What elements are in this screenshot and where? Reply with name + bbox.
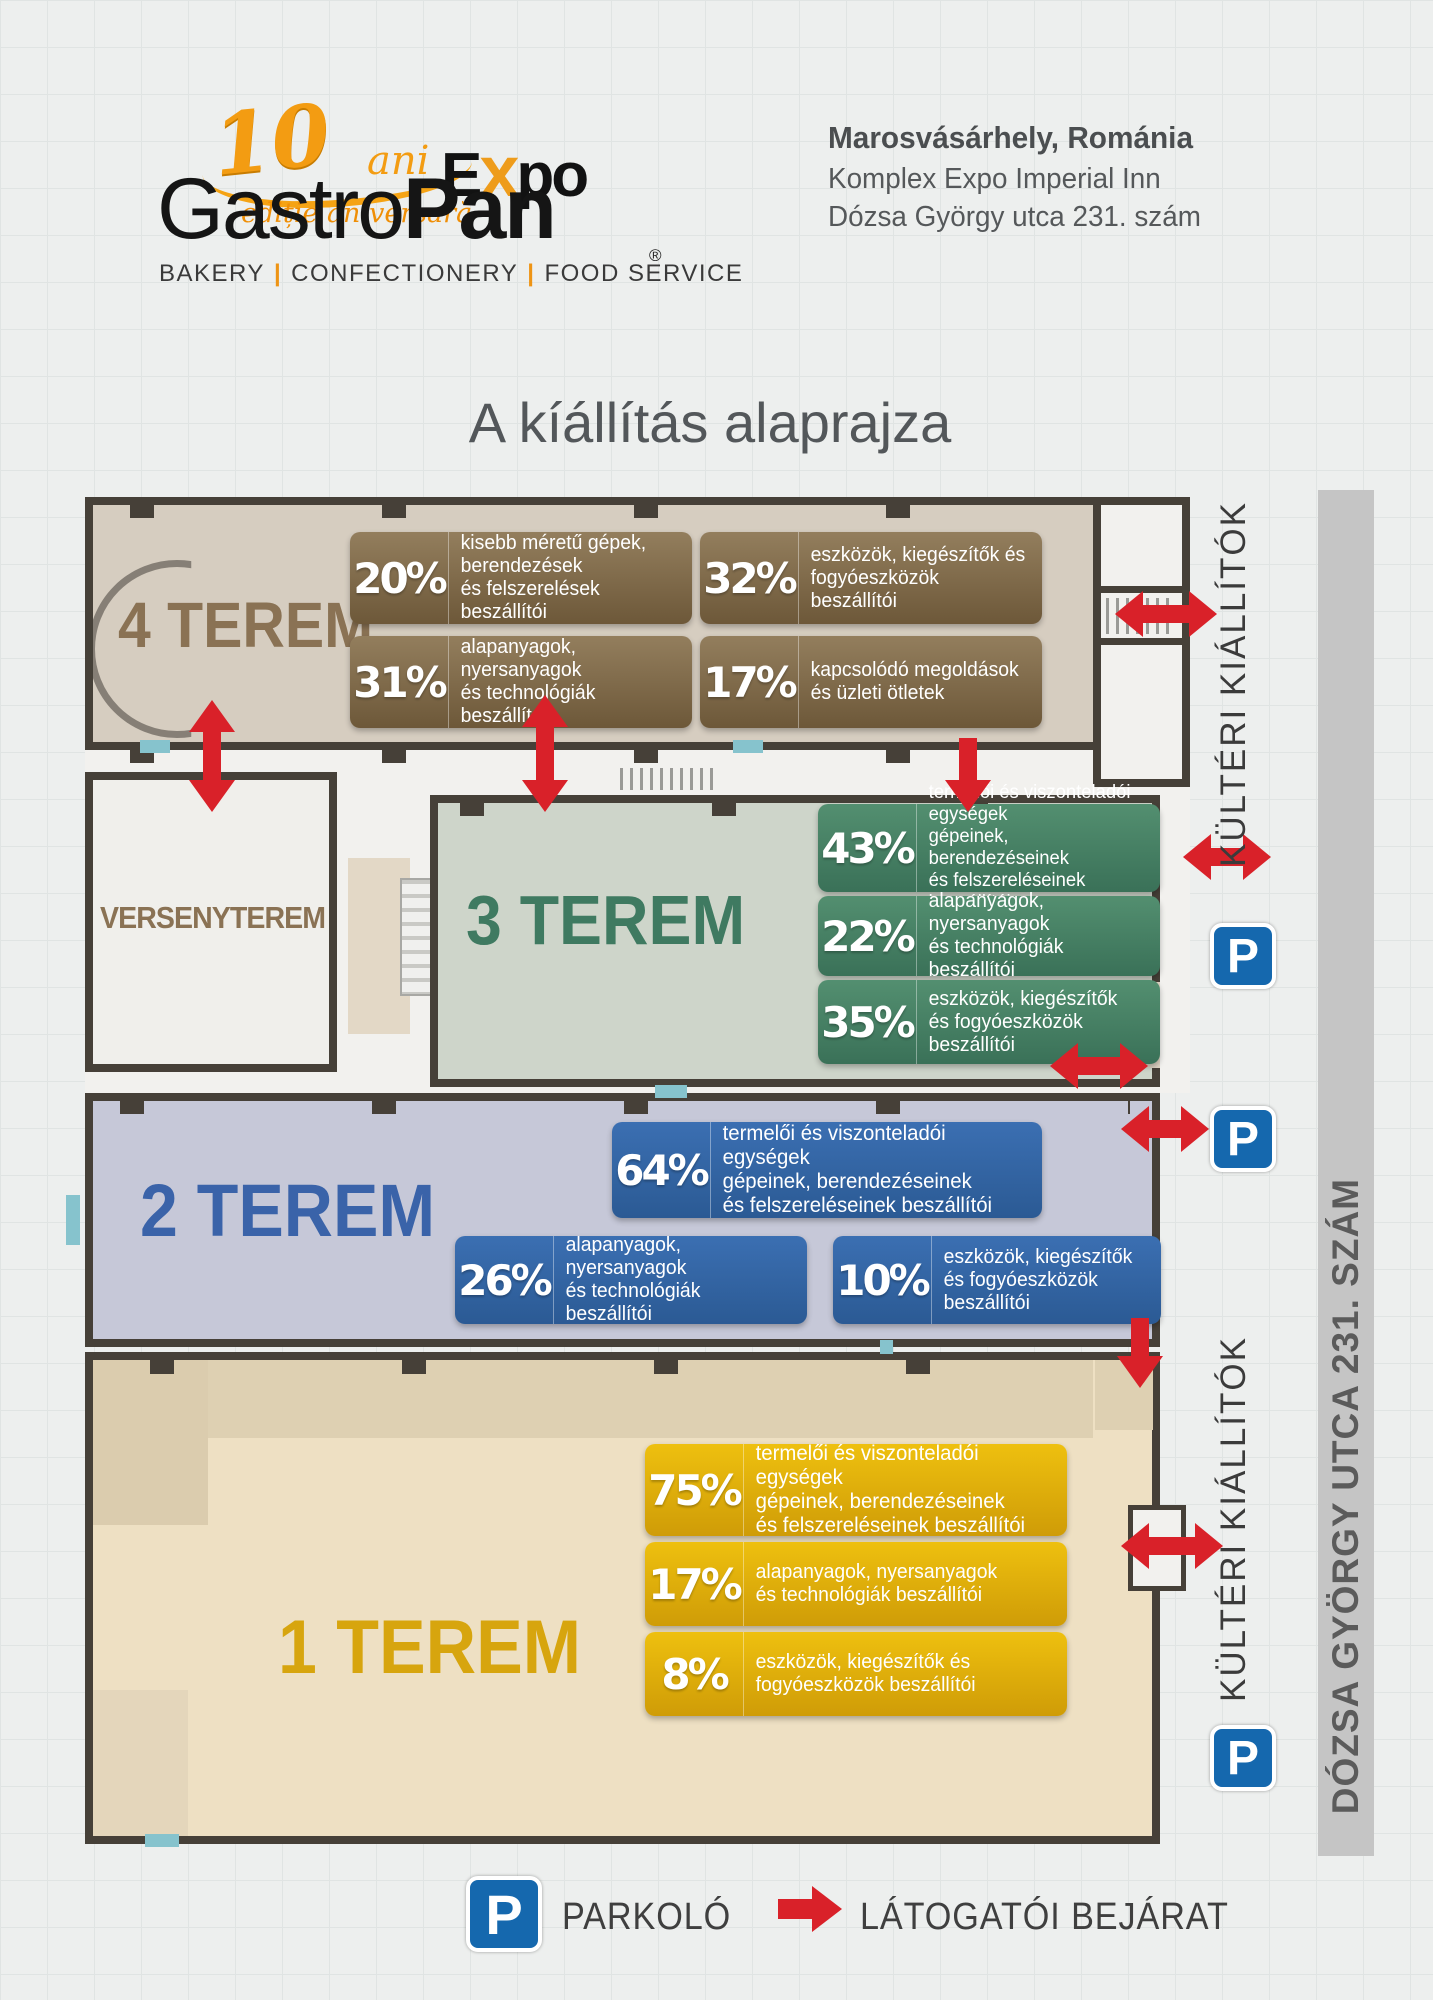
legend-entrance-arrow-icon	[778, 1886, 842, 1932]
door-icon	[733, 740, 763, 753]
hall-1-wall-columns	[150, 1360, 1080, 1374]
tagline-separator: |	[518, 260, 544, 287]
stat-percent: 32%	[700, 554, 798, 603]
hall3-stat-badge: 22% alapanyagok, nyersanyagok és technol…	[818, 896, 1160, 976]
hall-4-title: 4 TEREM	[118, 588, 373, 662]
hall-1-left-zone	[93, 1360, 208, 1525]
parking-sign-icon: P	[1210, 923, 1276, 989]
hall1-stat-badge: 17% alapanyagok, nyersanyagok és technol…	[645, 1542, 1067, 1626]
page-title: A kíállítás alaprajza	[380, 390, 1040, 455]
parking-sign-icon: P	[1210, 1106, 1276, 1172]
address-street: Dózsa György utca 231. szám	[828, 199, 1241, 237]
brand-pan: Pan	[403, 161, 555, 257]
hall-1-lower-left-zone	[93, 1690, 188, 1836]
legend-entrance-label: LÁTOGATÓI BEJÁRAT	[860, 1896, 1229, 1939]
entrance-arrow-hall3	[945, 738, 991, 812]
logo-tagline: BAKERY|CONFECTIONERY|FOOD SERVICE	[159, 260, 743, 288]
tagline-confectionery: CONFECTIONERY	[291, 260, 518, 287]
stat-label: eszközök, kiegészítők és fogyóeszközök b…	[798, 532, 1035, 624]
stat-percent: 10%	[833, 1256, 931, 1305]
stat-percent: 31%	[350, 658, 448, 707]
tagline-foodservice: FOOD SERVICE	[544, 260, 743, 287]
stat-percent: 8%	[645, 1650, 743, 1699]
hall4-stat-badge: 17% kapcsolódó megoldások és üzleti ötle…	[700, 636, 1042, 728]
stat-percent: 64%	[612, 1146, 710, 1195]
door-icon	[140, 740, 170, 753]
stat-percent: 43%	[818, 824, 916, 873]
hall2-stat-badge: 64% termelői és viszonteladói egységek g…	[612, 1122, 1042, 1218]
outdoor-exhibitors-label-top: KÜLTÉRI KIÁLLÍTÓK	[1214, 487, 1254, 867]
versenyterem-title: VERSENYTEREM	[100, 900, 325, 936]
street-bar: DÓZSA GYÖRGY UTCA 231. SZÁM	[1318, 490, 1374, 1856]
stairs-icon	[620, 768, 720, 790]
address-city: Marosvásárhely, Románia	[828, 120, 1241, 156]
stat-label: eszközök, kiegészítők és fogyóeszközök b…	[743, 1632, 983, 1716]
hall-2-wall-columns	[120, 1101, 1130, 1114]
stat-label: kapcsolódó megoldások és üzleti ötletek	[798, 636, 1027, 728]
entrance-arrow-hall1-outdoor	[1121, 1523, 1223, 1569]
stat-label: kisebb méretű gépek, berendezések és fel…	[448, 532, 685, 624]
stat-percent: 75%	[645, 1466, 743, 1515]
hall2-stat-badge: 10% eszközök, kiegészítők és fogyóeszköz…	[833, 1236, 1161, 1324]
stat-percent: 17%	[645, 1560, 743, 1609]
legend-parking-icon: P	[466, 1876, 542, 1952]
stat-percent: 17%	[700, 658, 798, 707]
stat-label: alapanyagok, nyersanyagok és technológiá…	[916, 896, 1153, 976]
hall1-stat-badge: 75% termelői és viszonteladói egységek g…	[645, 1444, 1067, 1536]
stat-label: alapanyagok, nyersanyagok és technológiá…	[553, 1236, 799, 1324]
stat-label: termelői és viszonteladói egységek gépei…	[743, 1444, 1057, 1536]
hall1-stat-badge: 8% eszközök, kiegészítők és fogyóeszközö…	[645, 1632, 1067, 1716]
door-icon	[880, 1340, 893, 1354]
hall-2-title: 2 TEREM	[140, 1168, 435, 1253]
parking-sign-icon: P	[1210, 1725, 1276, 1791]
stat-percent: 35%	[818, 998, 916, 1047]
entrance-arrow-hall4-outdoor	[1115, 591, 1217, 637]
entrance-arrow-hall2-hall1	[1117, 1318, 1163, 1388]
entrance-arrow-hall3-vestibule	[1050, 1043, 1148, 1089]
tagline-bakery: BAKERY	[159, 260, 265, 287]
legend-parking-label: PARKOLÓ	[562, 1896, 731, 1939]
hall-1-title: 1 TEREM	[278, 1604, 581, 1691]
hall-3-title: 3 TEREM	[466, 880, 745, 960]
entrance-arrow-hall4-versenyterem	[189, 700, 235, 812]
gastropan-expo-logo: 10 ani ediție aniversară Expo GastroPan …	[155, 98, 695, 293]
vestibule-wall	[1101, 638, 1182, 645]
entrance-arrow-hall2-outdoor	[1121, 1106, 1209, 1152]
stat-label: eszközök, kiegészítők és fogyóeszközök b…	[931, 1236, 1154, 1324]
stat-percent: 22%	[818, 912, 916, 961]
stat-label: termelői és viszonteladói egységek gépei…	[710, 1122, 1032, 1218]
stat-percent: 20%	[350, 554, 448, 603]
stat-label: alapanyagok, nyersanyagok és technológiá…	[743, 1542, 1005, 1626]
stat-percent: 26%	[455, 1256, 553, 1305]
hall-4-wall-columns	[130, 750, 1070, 763]
hall-4-wall-columns	[130, 505, 1070, 518]
door-icon	[66, 1195, 80, 1245]
stat-label: termelői és viszonteladói egységek gépei…	[916, 804, 1153, 892]
door-icon	[655, 1085, 687, 1098]
entrance-arrow-hall4-corridor	[522, 695, 568, 812]
street-bar-label: DÓZSA GYÖRGY UTCA 231. SZÁM	[1325, 1178, 1367, 1814]
outdoor-exhibitors-label-bottom: KÜLTÉRI KIÁLLÍTÓK	[1214, 1322, 1254, 1702]
hall4-stat-badge: 32% eszközök, kiegészítők és fogyóeszköz…	[700, 532, 1042, 624]
tagline-separator: |	[265, 260, 291, 287]
hall4-stat-badge: 31% alapanyagok, nyersanyagok és technol…	[350, 636, 692, 728]
address-venue: Komplex Expo Imperial Inn	[828, 161, 1241, 199]
hall2-stat-badge: 26% alapanyagok, nyersanyagok és technol…	[455, 1236, 807, 1324]
venue-address: Marosvásárhely, Románia Komplex Expo Imp…	[828, 120, 1241, 236]
hall4-stat-badge: 20% kisebb méretű gépek, berendezések és…	[350, 532, 692, 624]
brand-gastro: Gastro	[157, 161, 403, 257]
door-icon	[145, 1834, 179, 1847]
hall3-stat-badge: 43% termelői és viszonteladói egységek g…	[818, 804, 1160, 892]
gastropan-wordmark: GastroPan	[157, 162, 555, 257]
